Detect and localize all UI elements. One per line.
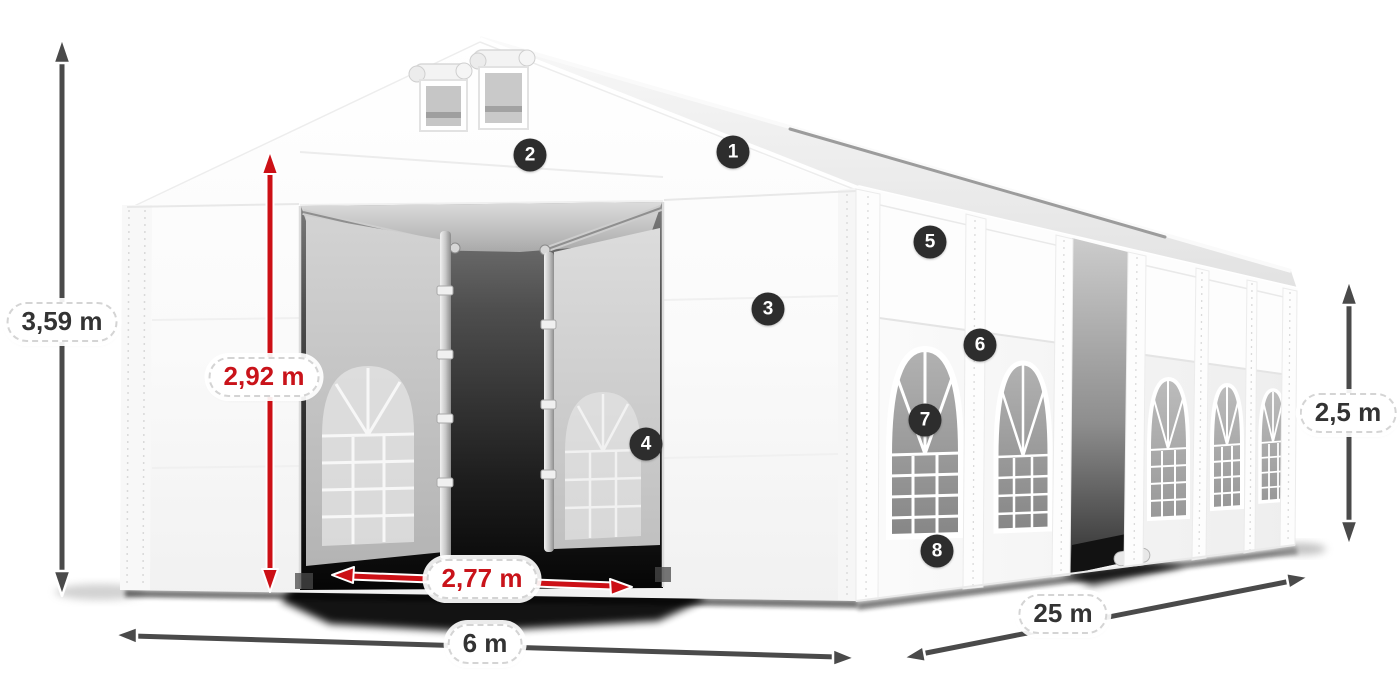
front-right-corner-strip xyxy=(838,188,856,601)
dimension-label-side-height: 2,5 m xyxy=(1300,393,1397,433)
marker-4-badge[interactable]: 4 xyxy=(630,428,663,461)
marker-5-badge[interactable]: 5 xyxy=(914,226,947,259)
pole-foot-left xyxy=(295,573,313,589)
side-window-1 xyxy=(889,349,961,537)
marker-7-badge[interactable]: 7 xyxy=(909,404,942,437)
side-window-4 xyxy=(1212,385,1242,509)
tent-illustration xyxy=(0,0,1400,700)
dimension-label-total-height: 3,59 m xyxy=(7,302,118,342)
dimension-label-gable-width: 6 m xyxy=(448,624,523,664)
dimension-label-entrance-width: 2,77 m xyxy=(427,559,538,599)
vent-window-right xyxy=(470,50,535,129)
dimension-label-entrance-height: 2,92 m xyxy=(209,357,320,397)
left-door-panel xyxy=(306,216,453,566)
front-left-corner-strip xyxy=(120,205,152,590)
side-window-2 xyxy=(996,363,1050,531)
marker-3-badge[interactable]: 3 xyxy=(752,293,785,326)
side-window-3 xyxy=(1149,379,1188,519)
pole-foot-right xyxy=(655,567,671,582)
marker-2-badge[interactable]: 2 xyxy=(514,139,547,172)
marker-8-badge[interactable]: 8 xyxy=(921,535,954,568)
marker-1-badge[interactable]: 1 xyxy=(717,136,750,169)
right-door-panel xyxy=(541,228,660,552)
dimension-label-length: 25 m xyxy=(1018,594,1107,634)
door-frame-pole-left xyxy=(440,231,451,559)
tent-diagram: 3,59 m 2,92 m 2,77 m 6 m 25 m 2,5 m 1 2 … xyxy=(0,0,1400,700)
marker-6-badge[interactable]: 6 xyxy=(964,329,997,362)
entrance-opening xyxy=(295,201,671,590)
